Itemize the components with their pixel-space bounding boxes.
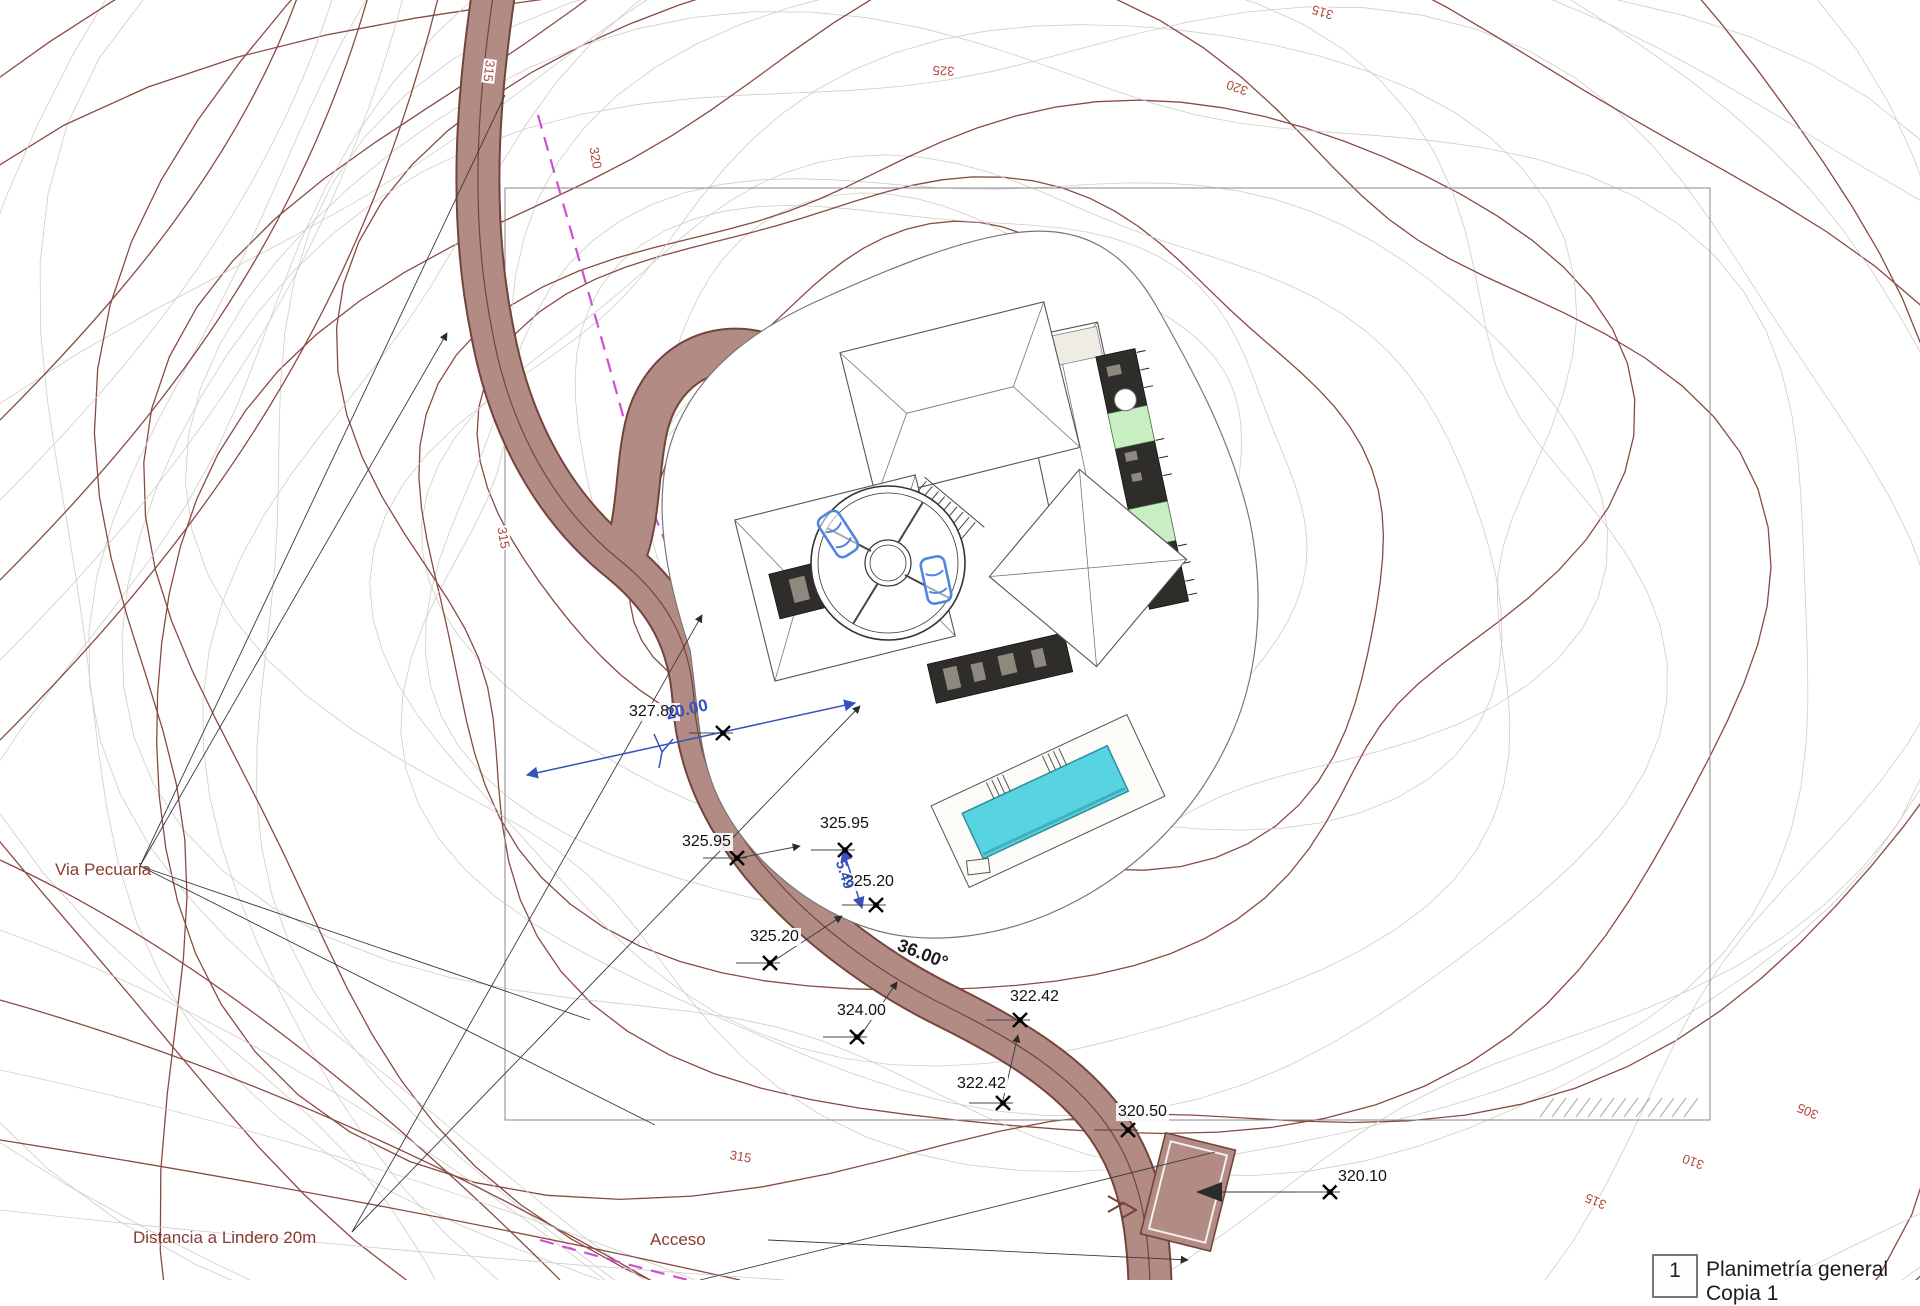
spot-elevation-label: 322.42 [955, 1075, 1008, 1093]
titleblock-title: Planimetría general Copia 1 [1706, 1258, 1920, 1306]
contour-label: 315 [481, 58, 497, 83]
contour-label: 325 [931, 64, 955, 78]
titleblock-number: 1 [1652, 1254, 1698, 1298]
contour-label: 315 [728, 1148, 754, 1165]
spot-elevation-label: 320.50 [1116, 1103, 1169, 1121]
acceso-label: Acceso [650, 1230, 706, 1250]
site-plan-sheet: 327.80 325.95 325.95 325.20 325.20 324.0… [0, 0, 1920, 1280]
distancia-lindero-label: Distancia a Lindero 20m [133, 1228, 316, 1248]
contour-label: 315 [495, 525, 512, 551]
via-pecuaria-label: Via Pecuaria [55, 860, 151, 880]
spot-elevation-label: 324.00 [835, 1002, 888, 1020]
contour-label: 320 [587, 145, 604, 171]
spot-elevation-label: 325.20 [748, 928, 801, 946]
boundary-hatch [1540, 1098, 1698, 1117]
spot-elevation-label: 325.95 [680, 833, 733, 851]
spot-elevation-label: 322.42 [1008, 988, 1061, 1006]
spot-elevation-label: 325.95 [818, 815, 871, 833]
spot-elevation-label: 320.10 [1336, 1168, 1389, 1186]
survey-marker-glyph [654, 734, 673, 768]
